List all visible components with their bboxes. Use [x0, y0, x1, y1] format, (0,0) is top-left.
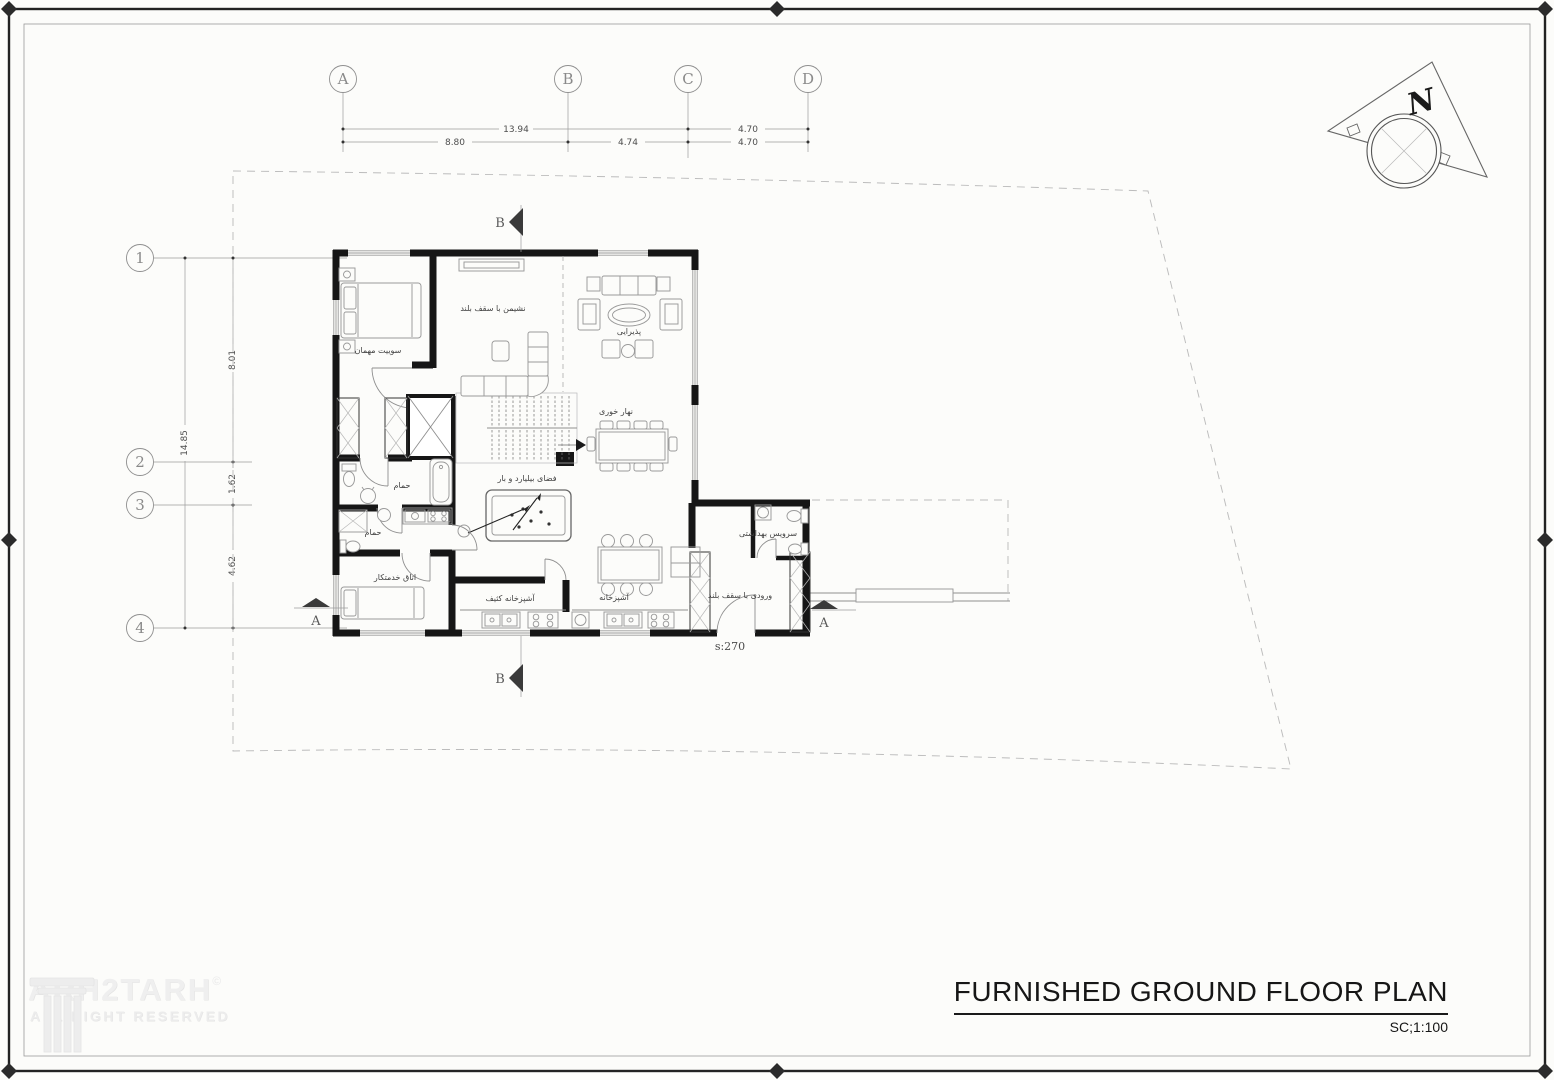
bathtub — [430, 459, 452, 505]
sink-bath2 — [378, 509, 391, 522]
section-label-b-bottom: B — [495, 672, 505, 687]
north-arrow: N — [1328, 62, 1487, 188]
grid-col-b: B — [562, 70, 573, 88]
guest-bed — [341, 283, 421, 338]
floor-plan-drawing: A B C D 13.94 4.70 8.80 4.74 4.70 1 2 3 … — [0, 0, 1554, 1080]
watermark: ARH2TARH© ALL RIGHT RESERVED — [28, 974, 230, 1024]
floor-plan: سوییت مهمان نشیمن با سقف بلند پذیرایی نه… — [333, 250, 810, 653]
corner-ornaments — [1, 1, 1553, 1079]
grid-col-c: C — [682, 70, 693, 88]
room-label-entrance: ورودی با سقف بلند — [708, 591, 772, 600]
sink-bath1 — [361, 487, 376, 504]
drawing-sheet: A B C D 13.94 4.70 8.80 4.74 4.70 1 2 3 … — [0, 0, 1554, 1080]
wall-niche — [459, 259, 524, 271]
section-marker-b-bottom: B — [495, 636, 523, 697]
dim-8-80: 8.80 — [445, 138, 465, 148]
room-label-reception: پذیرایی — [617, 327, 641, 336]
section-marker-b-top: B — [495, 205, 523, 252]
room-label-dining: نهار خوری — [599, 407, 633, 416]
drawing-scale: SC;1:100 — [954, 1019, 1448, 1035]
column-logo-icon — [28, 974, 100, 1054]
canopy-outline — [812, 500, 1008, 601]
room-label-bathroom-1: حمام — [394, 481, 411, 490]
dim-4-70-upper: 4.70 — [738, 125, 758, 135]
room-label-billiard: فضای بیلیارد و بار — [496, 474, 556, 483]
kitchen-table — [598, 535, 662, 596]
maid-bed — [341, 587, 424, 619]
grid-row-1: 1 — [135, 249, 145, 267]
grid-col-a: A — [337, 70, 349, 88]
section-label-b-top: B — [495, 216, 505, 231]
section-marker-a-left: A — [294, 598, 348, 629]
billiard-table — [458, 490, 571, 541]
room-label-bathroom-2: حمام — [365, 528, 382, 537]
shower — [339, 510, 367, 532]
dim-14-85: 14.85 — [180, 430, 190, 456]
stair-wall-stub — [556, 452, 574, 466]
room-label-dirty-kitchen: آشپزخانه کثیف — [485, 593, 535, 603]
sheet-frame — [1, 1, 1553, 1079]
grid-row-3: 3 — [135, 496, 145, 514]
column-grid: A B C D 13.94 4.70 8.80 4.74 4.70 — [330, 66, 822, 159]
title-block: FURNISHED GROUND FLOOR PLAN SC;1:100 — [954, 976, 1448, 1035]
annotation-s270: s:270 — [715, 640, 745, 653]
dim-13-94: 13.94 — [503, 125, 529, 135]
toilet-bath1 — [342, 464, 356, 487]
room-label-guest-suite: سوییت مهمان — [355, 346, 402, 355]
row-grid: 1 2 3 4 14.85 8.01 1.62 4.62 — [127, 245, 348, 642]
stair-direction-arrow — [576, 439, 586, 451]
coffee-table — [608, 304, 650, 326]
grid-row-4: 4 — [135, 619, 145, 637]
site-boundary — [233, 171, 1291, 769]
dining-table — [587, 421, 677, 471]
room-label-kitchen: آشپزخانه — [599, 592, 629, 602]
dirty-kitchen-counter — [460, 610, 566, 628]
section-label-a-right: A — [818, 616, 829, 631]
reception-sofa-set — [578, 276, 682, 358]
room-label-sitting: نشیمن با سقف بلند — [460, 304, 525, 313]
room-label-wc: سرویس بهداشتی — [739, 529, 797, 538]
pouf — [492, 341, 509, 361]
dim-4-70-lower: 4.70 — [738, 138, 758, 148]
toilet-bath2 — [340, 540, 360, 553]
room-label-maid-room: اتاق خدمتکار — [373, 573, 416, 582]
drawing-title: FURNISHED GROUND FLOOR PLAN — [954, 976, 1448, 1015]
dim-4-74: 4.74 — [618, 138, 638, 148]
elevator-shaft — [408, 396, 453, 458]
section-label-a-left: A — [310, 614, 321, 629]
grid-row-2: 2 — [135, 453, 145, 471]
grid-col-d: D — [802, 70, 814, 88]
watermark-copyright: © — [212, 974, 221, 988]
section-marker-a-right: A — [810, 600, 856, 631]
walkway — [810, 589, 1010, 602]
